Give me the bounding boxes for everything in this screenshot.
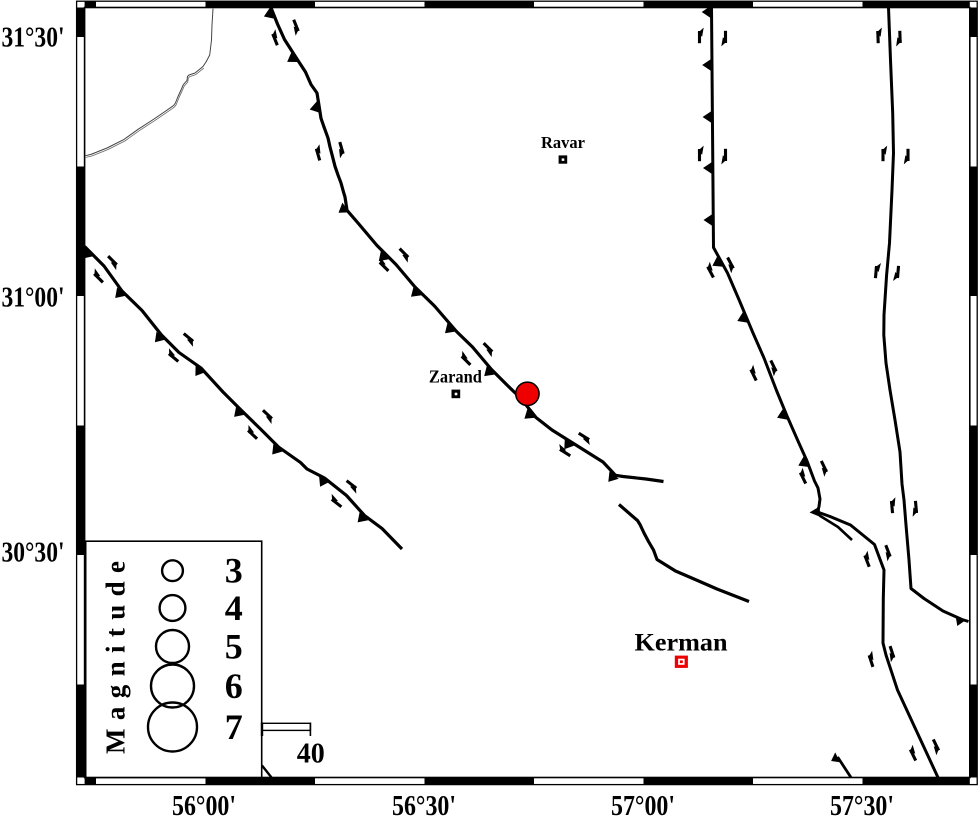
svg-text:7: 7	[225, 707, 243, 747]
svg-text:3: 3	[225, 551, 243, 591]
svg-text:Zarand: Zarand	[429, 367, 482, 387]
svg-text:4: 4	[225, 588, 243, 628]
svg-text:5: 5	[225, 627, 243, 667]
svg-text:6: 6	[225, 666, 243, 706]
svg-text:56°00': 56°00'	[172, 790, 236, 816]
svg-text:Ravar: Ravar	[541, 133, 585, 152]
svg-text:56°30': 56°30'	[392, 790, 456, 816]
svg-text:31°00': 31°00'	[2, 282, 65, 314]
svg-text:40: 40	[297, 739, 325, 770]
svg-text:57°30': 57°30'	[830, 790, 894, 816]
svg-text:Kerman: Kerman	[635, 628, 728, 657]
svg-text:30°30': 30°30'	[2, 537, 65, 569]
svg-text:31°30': 31°30'	[2, 22, 65, 54]
svg-text:57°00': 57°00'	[611, 790, 675, 816]
